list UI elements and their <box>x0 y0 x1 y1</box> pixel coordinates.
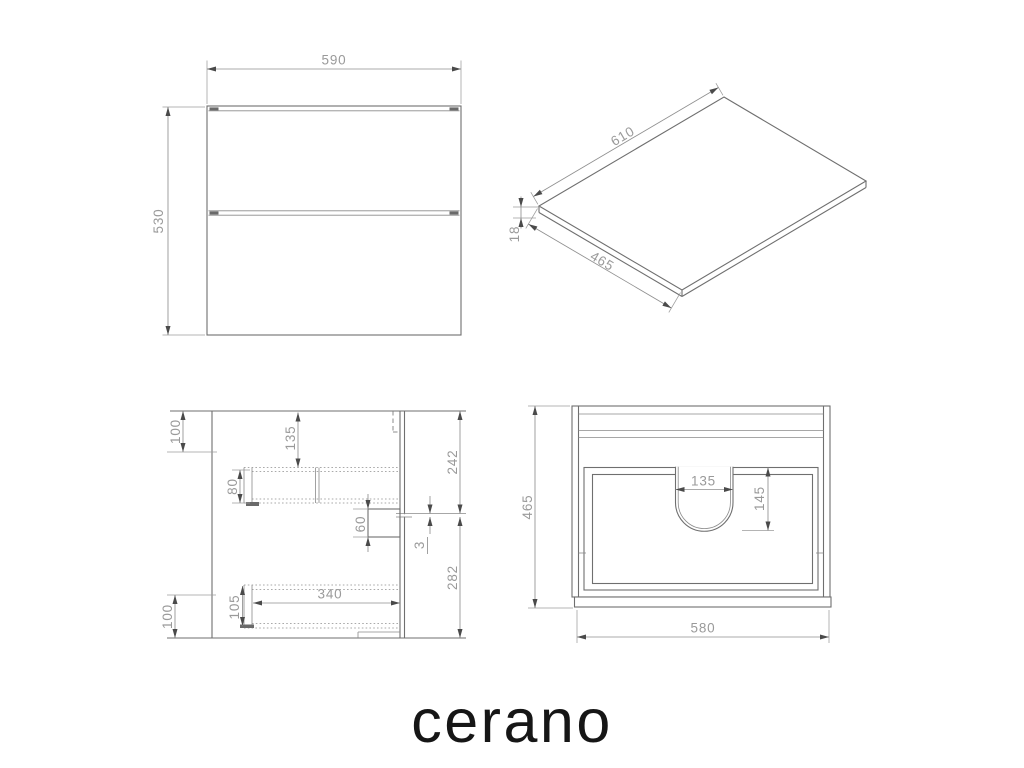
dim-label-80: 80 <box>225 478 240 495</box>
dim-front-height: 530 <box>151 107 205 335</box>
dim-label-530: 530 <box>151 209 166 234</box>
dim-label-282: 282 <box>445 565 460 590</box>
back-bracket <box>368 509 400 537</box>
dim-plan-depth: 465 <box>520 406 573 608</box>
dim-label-590: 590 <box>322 53 347 68</box>
dim-label-18: 18 <box>507 226 522 243</box>
dim-side-lower-back: 282 <box>445 517 460 638</box>
dim-label-135-side: 135 <box>283 426 298 451</box>
countertop-iso-view: 610 465 18 <box>507 83 866 312</box>
dim-plan-width: 580 <box>577 610 829 643</box>
dim-countertop-thickness: 18 <box>507 197 540 243</box>
dim-label-100-top: 100 <box>168 419 183 444</box>
dim-label-242: 242 <box>445 450 460 475</box>
front-view: 590 530 <box>151 53 461 336</box>
plan-front-strip <box>575 597 832 607</box>
dim-label-580: 580 <box>691 621 716 636</box>
side-section-view: 100 135 80 60 242 3 <box>160 411 466 638</box>
dim-side-lower-rail-height: 105 <box>227 586 243 626</box>
dim-label-105: 105 <box>227 595 242 620</box>
dim-side-bottom-offset: 100 <box>160 595 175 638</box>
dim-label-340: 340 <box>318 587 343 602</box>
drawing-canvas: 590 530 610 465 <box>0 0 1024 768</box>
dim-side-top-offset: 100 <box>168 411 183 452</box>
dim-label-465-iso: 465 <box>588 248 617 274</box>
dim-side-upper-back: 242 <box>445 411 460 514</box>
dim-label-145: 145 <box>752 486 767 511</box>
dim-side-rail-height: 80 <box>225 470 250 503</box>
dim-label-60: 60 <box>353 516 368 533</box>
upper-rail <box>244 468 400 507</box>
dim-label-135-plan: 135 <box>691 474 716 489</box>
dim-label-100-bottom: 100 <box>160 604 175 629</box>
technical-drawing-sheet: 590 530 610 465 <box>0 0 1024 768</box>
dim-front-width: 590 <box>207 53 461 105</box>
dim-label-3: 3 <box>412 541 427 549</box>
cabinet-front-outline <box>207 106 461 335</box>
dim-side-rail-length: 340 <box>253 587 400 604</box>
dim-label-610: 610 <box>608 123 637 149</box>
dim-side-rail-from-top: 135 <box>283 413 298 468</box>
dim-label-465-plan: 465 <box>520 495 535 520</box>
plan-view: 465 135 145 580 <box>520 406 831 643</box>
brand-logo: cerano <box>411 687 613 755</box>
dim-side-panel-gap: 3 <box>412 496 430 554</box>
